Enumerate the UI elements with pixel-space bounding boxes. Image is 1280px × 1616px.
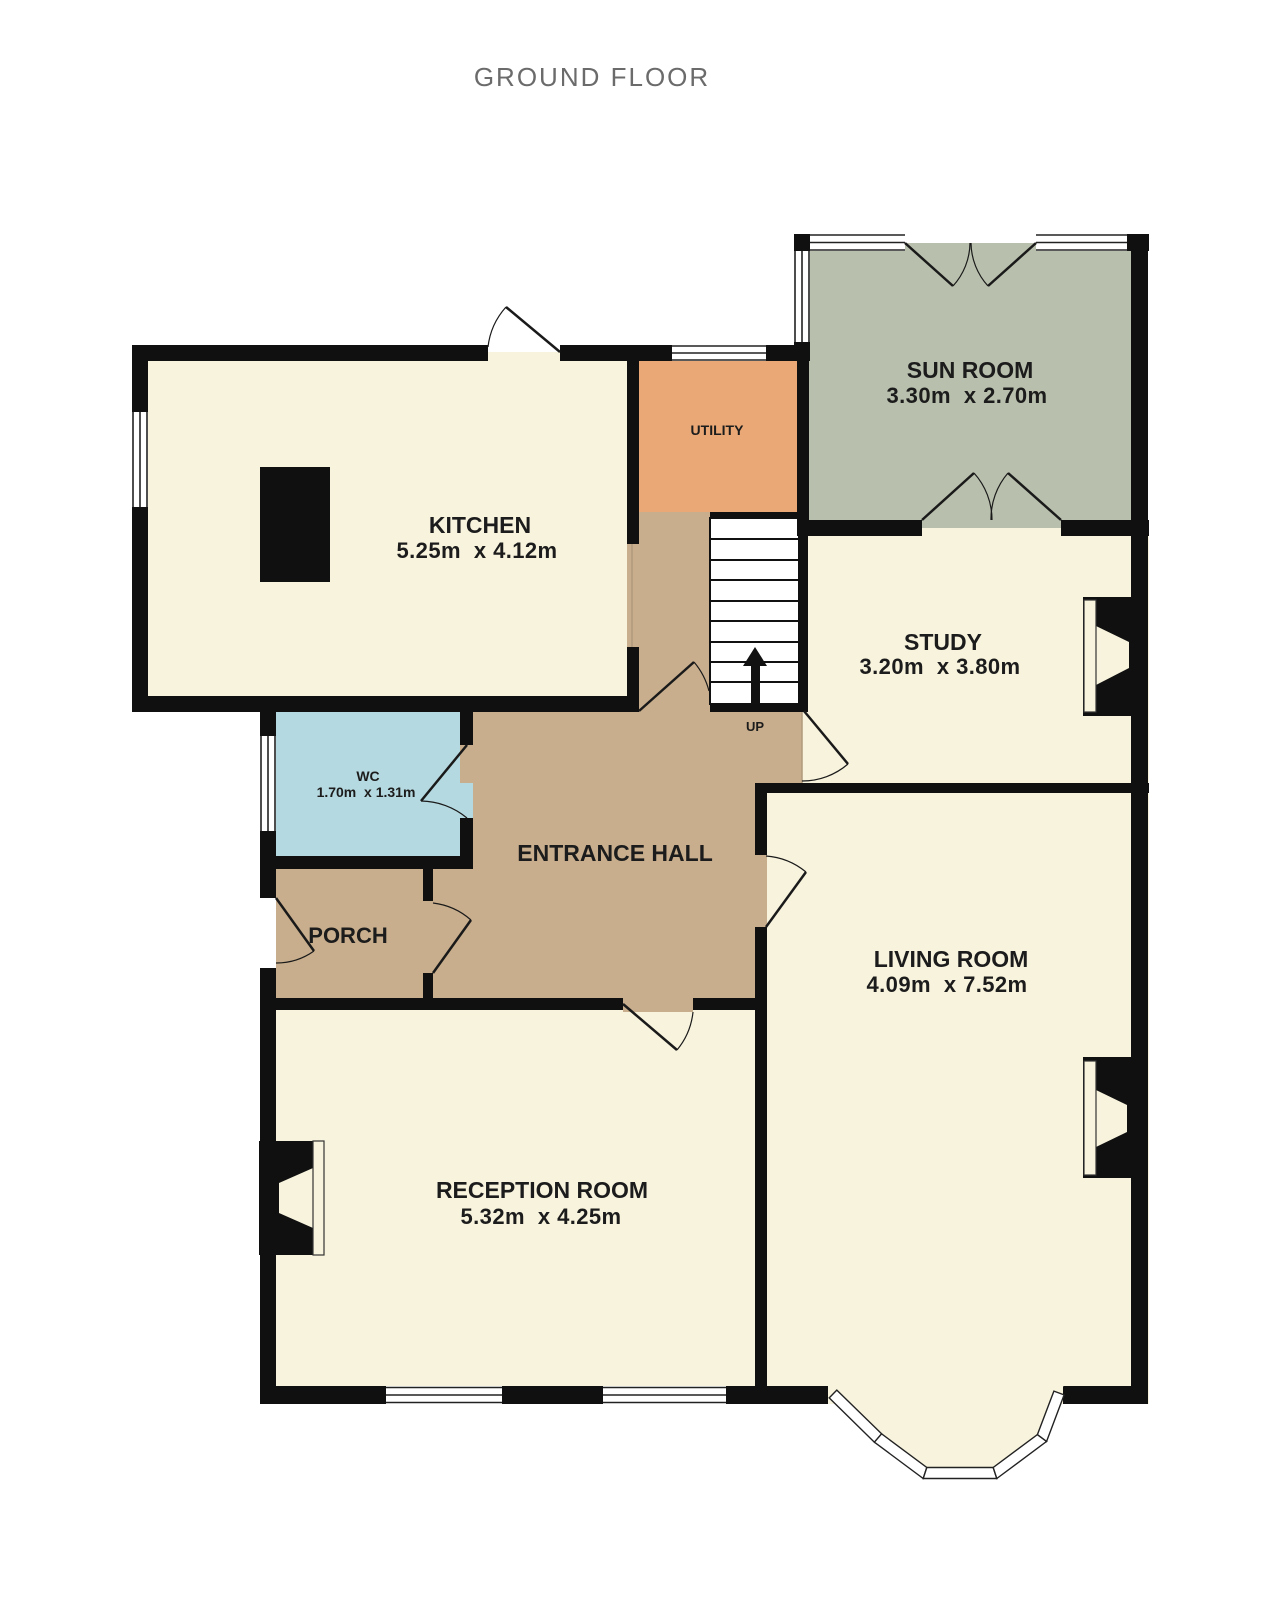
svg-text:5.32m x 4.25m: 5.32m x 4.25m (461, 1204, 622, 1229)
svg-text:4.09m x 7.52m: 4.09m x 7.52m (867, 972, 1028, 997)
svg-text:KITCHEN: KITCHEN (429, 512, 531, 538)
svg-text:UP: UP (746, 719, 764, 734)
svg-text:LIVING ROOM: LIVING ROOM (874, 946, 1029, 972)
svg-text:UTILITY: UTILITY (691, 422, 745, 438)
svg-text:STUDY: STUDY (904, 629, 982, 655)
svg-text:WC: WC (356, 768, 379, 784)
svg-text:GROUND FLOOR: GROUND FLOOR (474, 62, 710, 92)
svg-text:PORCH: PORCH (308, 923, 387, 948)
svg-text:ENTRANCE HALL: ENTRANCE HALL (517, 840, 713, 866)
svg-text:SUN ROOM: SUN ROOM (907, 357, 1034, 383)
svg-text:3.20m x 3.80m: 3.20m x 3.80m (860, 654, 1021, 679)
svg-text:RECEPTION ROOM: RECEPTION ROOM (436, 1177, 648, 1203)
svg-text:5.25m x 4.12m: 5.25m x 4.12m (397, 538, 558, 563)
svg-text:1.70m x 1.31m: 1.70m x 1.31m (317, 784, 416, 800)
svg-text:3.30m x 2.70m: 3.30m x 2.70m (887, 383, 1048, 408)
